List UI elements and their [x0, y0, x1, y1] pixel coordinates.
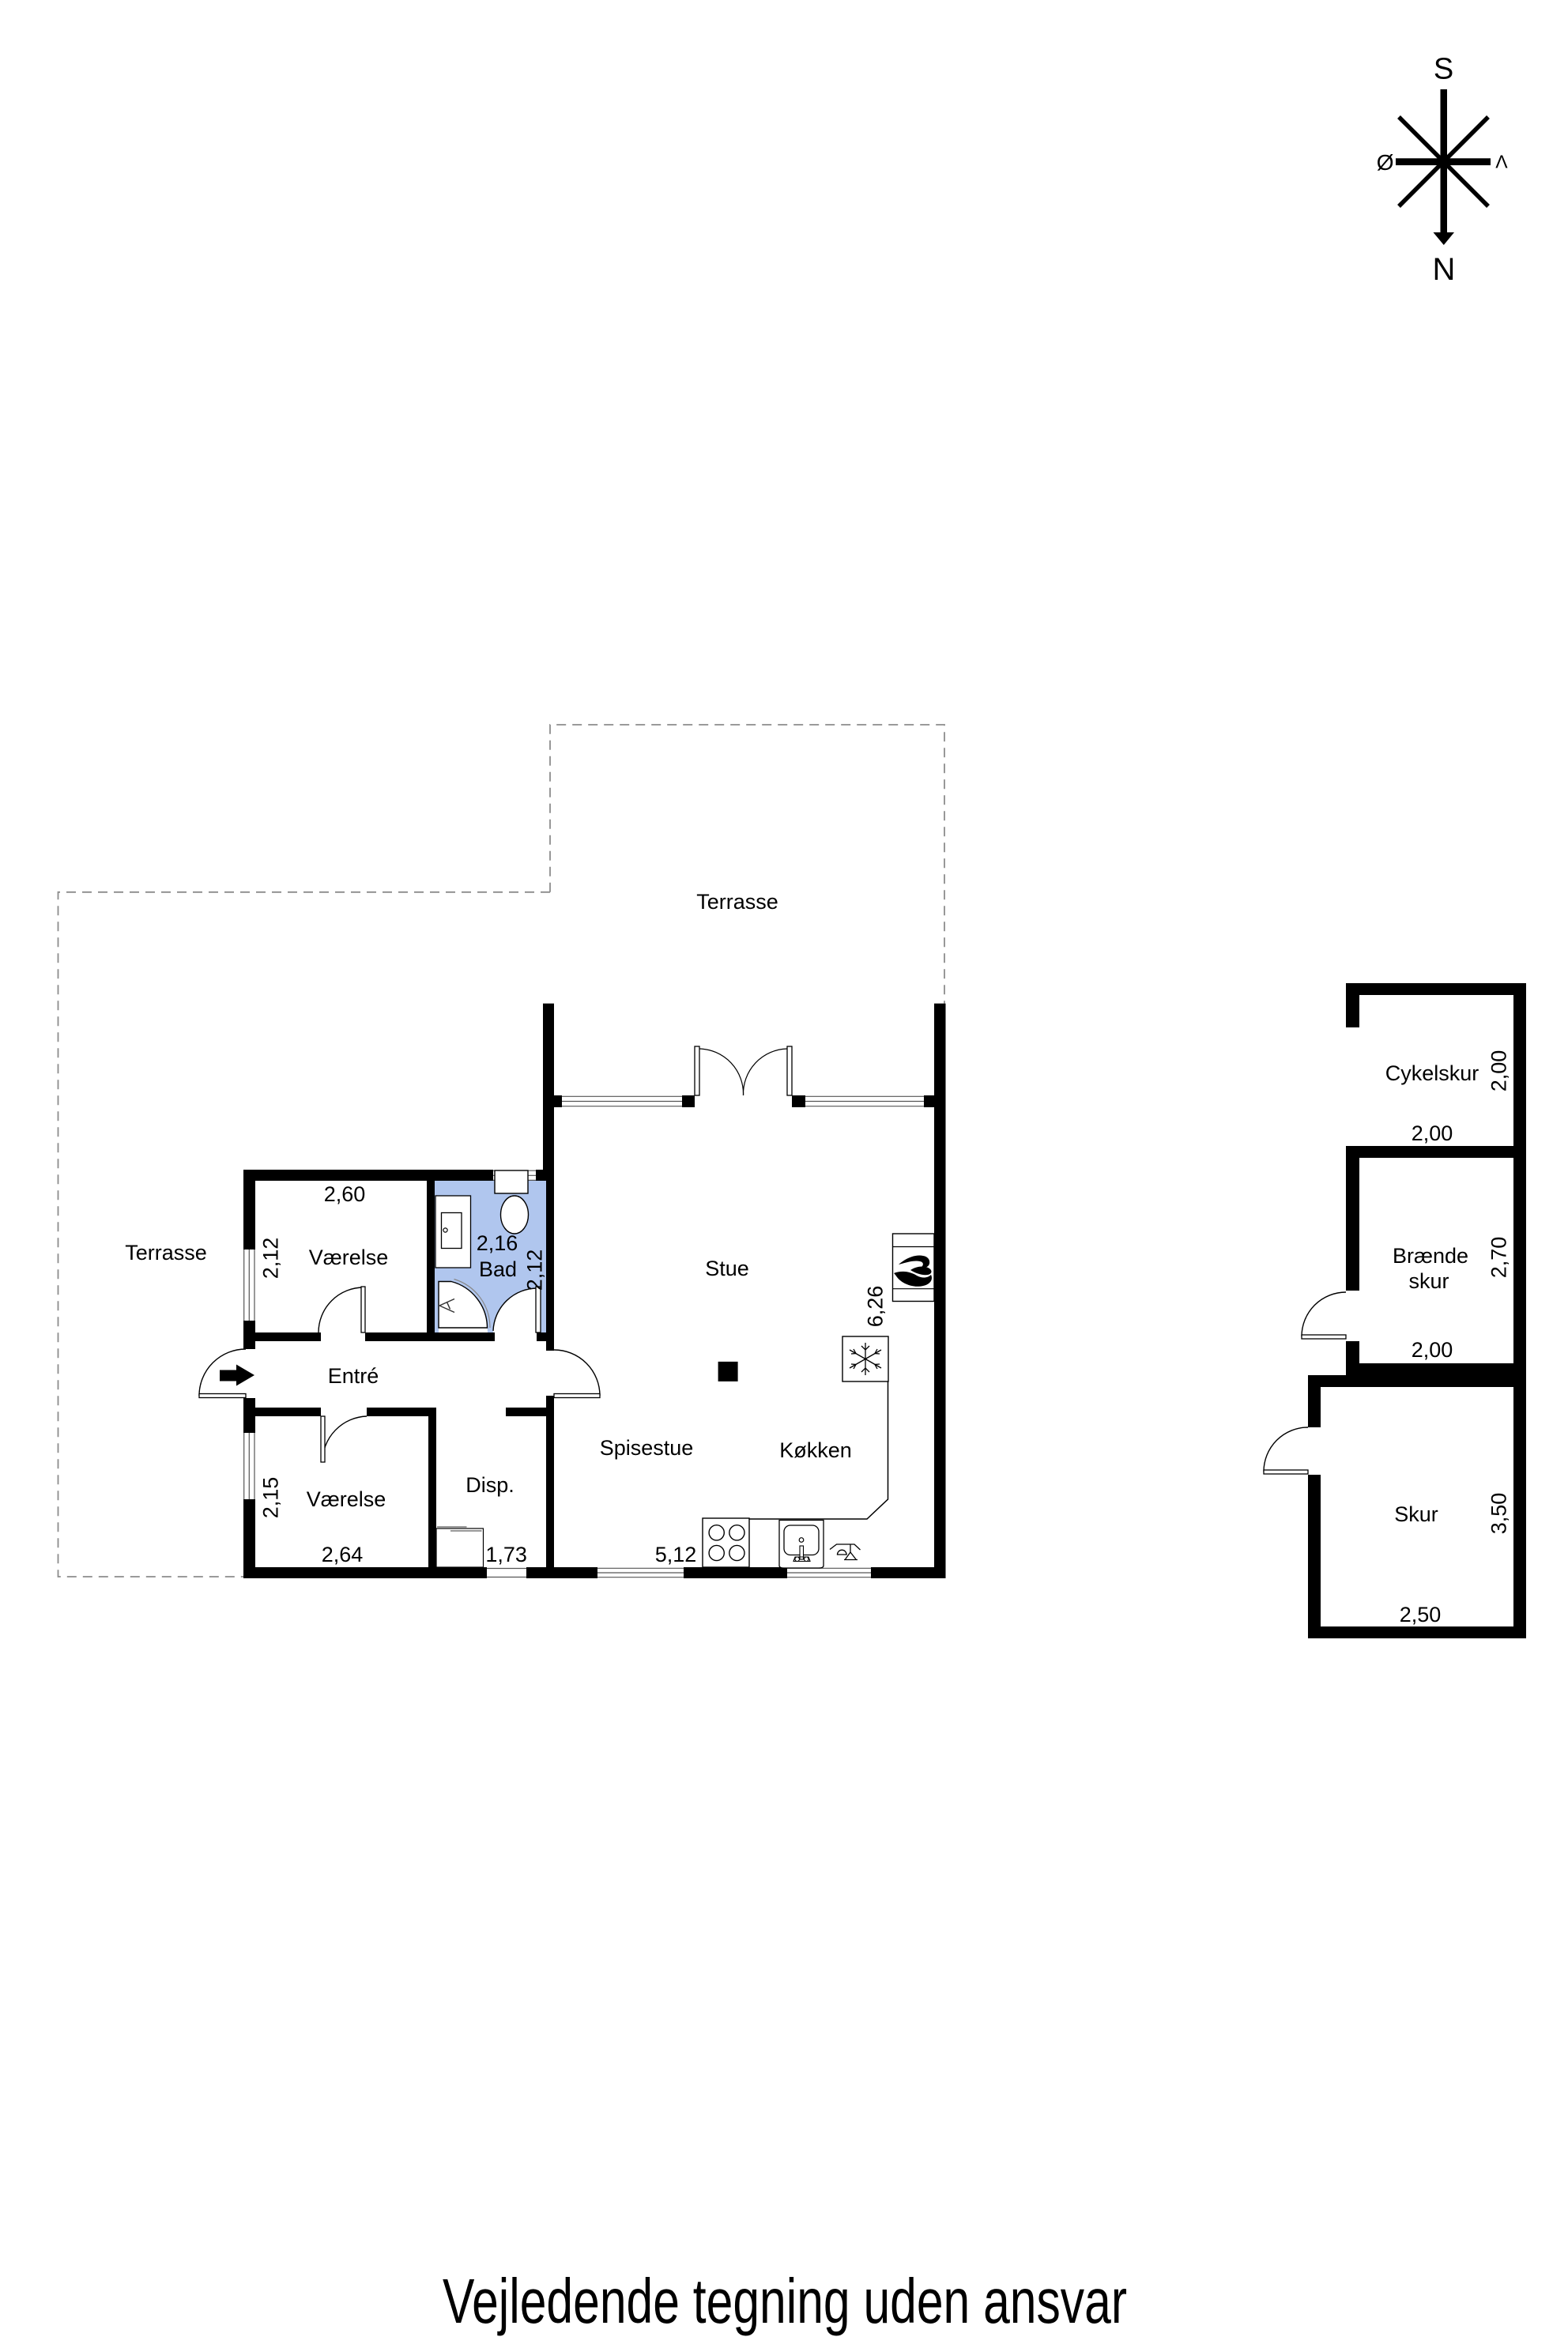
svg-text:Køkken: Køkken [779, 1438, 852, 1462]
svg-text:2,16: 2,16 [477, 1231, 518, 1255]
svg-text:2,12: 2,12 [523, 1249, 547, 1291]
svg-text:Ø: Ø [1377, 150, 1394, 175]
svg-text:6,26: 6,26 [864, 1286, 888, 1328]
svg-text:N: N [1433, 252, 1456, 287]
svg-text:Værelse: Værelse [309, 1246, 389, 1269]
svg-text:Terrasse: Terrasse [125, 1241, 207, 1265]
svg-text:Cykelskur: Cykelskur [1385, 1061, 1479, 1085]
svg-text:Disp.: Disp. [465, 1473, 514, 1497]
svg-text:2,60: 2,60 [324, 1182, 366, 1206]
svg-text:Værelse: Værelse [307, 1487, 386, 1511]
svg-text:2,64: 2,64 [322, 1543, 364, 1566]
svg-text:5,12: 5,12 [655, 1543, 697, 1566]
svg-text:2,00: 2,00 [1412, 1338, 1453, 1362]
svg-text:S: S [1434, 53, 1453, 86]
svg-text:2,12: 2,12 [259, 1238, 283, 1280]
svg-text:1,73: 1,73 [485, 1543, 527, 1566]
svg-text:Terrasse: Terrasse [696, 890, 778, 914]
svg-text:3,50: 3,50 [1487, 1493, 1511, 1535]
svg-text:Skur: Skur [1394, 1502, 1438, 1526]
svg-text:skur: skur [1408, 1269, 1449, 1293]
svg-text:Brænde: Brænde [1393, 1244, 1468, 1268]
svg-text:Spisestue: Spisestue [600, 1436, 694, 1460]
svg-text:Stue: Stue [705, 1257, 749, 1280]
svg-text:Bad: Bad [479, 1257, 517, 1281]
svg-text:2,70: 2,70 [1487, 1237, 1511, 1279]
svg-text:Vejledende tegning uden ansvar: Vejledende tegning uden ansvar [443, 2266, 1127, 2336]
svg-text:2,50: 2,50 [1400, 1603, 1442, 1626]
svg-text:V: V [1495, 152, 1508, 172]
svg-text:2,15: 2,15 [259, 1477, 283, 1519]
svg-text:2,00: 2,00 [1487, 1050, 1511, 1092]
svg-text:2,00: 2,00 [1412, 1121, 1453, 1145]
svg-text:Entré: Entré [328, 1364, 379, 1388]
